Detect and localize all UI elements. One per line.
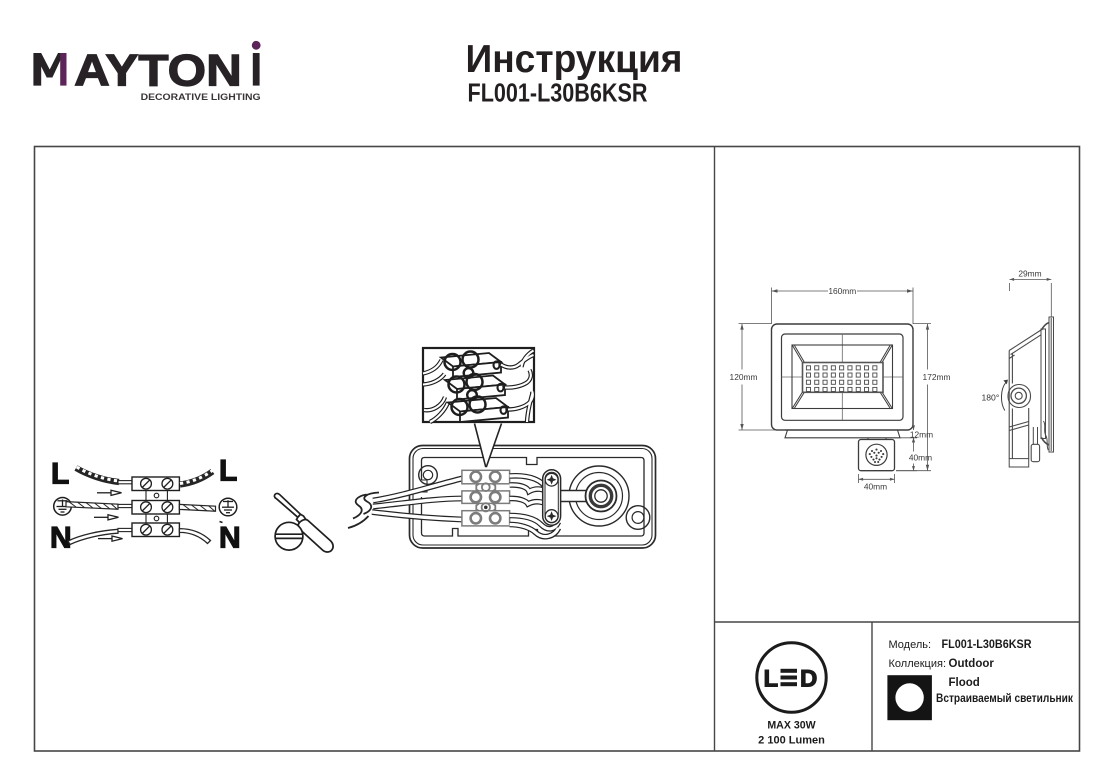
- svg-text:Встраиваемый светильник: Встраиваемый светильник: [936, 693, 1073, 705]
- svg-text:L: L: [219, 455, 237, 488]
- svg-text:2 100 Lumen: 2 100 Lumen: [758, 735, 825, 747]
- svg-text:L: L: [764, 666, 779, 693]
- svg-text:FL001-L30B6KSR: FL001-L30B6KSR: [468, 80, 648, 108]
- svg-text:L: L: [51, 458, 69, 491]
- svg-text:Модель:: Модель:: [889, 639, 932, 651]
- svg-text:N: N: [50, 522, 72, 555]
- svg-text:N: N: [219, 522, 241, 555]
- svg-text:172mm: 172mm: [923, 372, 951, 382]
- svg-text:40mm: 40mm: [909, 452, 932, 462]
- svg-text:MAX 30W: MAX 30W: [767, 720, 815, 732]
- svg-text:29mm: 29mm: [1018, 269, 1041, 279]
- svg-text:AYTON: AYTON: [74, 46, 242, 95]
- svg-text:180°: 180°: [982, 393, 1000, 403]
- svg-text:120mm: 120mm: [730, 372, 758, 382]
- svg-text:40mm: 40mm: [864, 482, 887, 492]
- svg-text:FL001-L30B6KSR: FL001-L30B6KSR: [942, 639, 1033, 651]
- svg-text:DECORATIVE LIGHTING: DECORATIVE LIGHTING: [141, 92, 261, 102]
- svg-text:Outdoor: Outdoor: [949, 658, 995, 670]
- svg-text:Коллекция:: Коллекция:: [889, 658, 947, 670]
- svg-text:12mm: 12mm: [910, 429, 933, 439]
- svg-text:D: D: [800, 666, 817, 693]
- svg-text:Flood: Flood: [949, 677, 980, 689]
- svg-text:Инструкция: Инструкция: [466, 38, 683, 81]
- svg-text:160mm: 160mm: [828, 286, 856, 296]
